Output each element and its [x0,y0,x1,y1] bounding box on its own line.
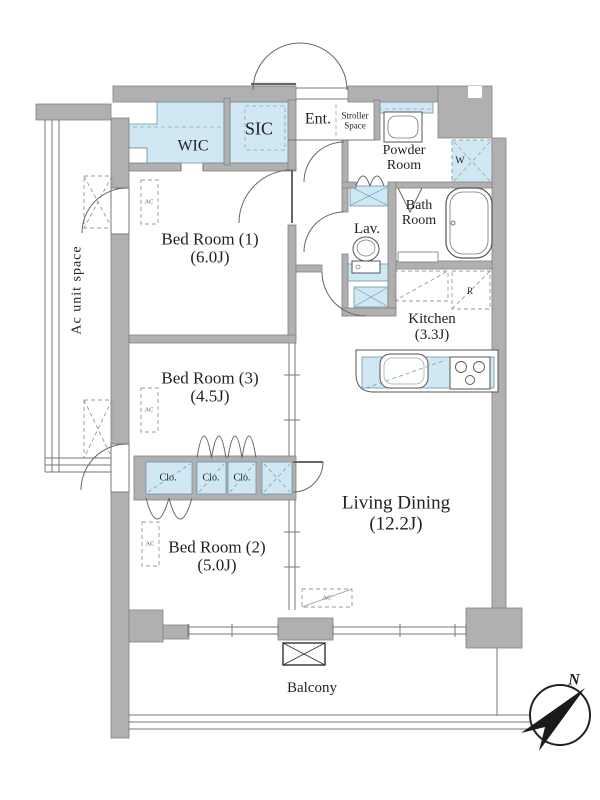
label-entrance: Ent. [305,110,331,127]
compass-icon [521,685,590,751]
label-ac-unit-space: Ac unit space [69,245,84,334]
entry-shelf [376,101,433,113]
pillar-duct [129,148,147,163]
label-refrigerator: R [467,287,473,297]
label-closet-2: Clo. [203,474,220,485]
powder-sink [384,112,422,142]
label-bedroom3: Bed Room (3) (4.5J) [161,370,258,407]
label-balcony: Balcony [287,680,337,696]
label-closet-1: Clo. [160,474,177,485]
label-powder-room: Powder Room [383,143,426,173]
toilet [352,237,380,273]
kitchen-counter [356,350,498,392]
label-ac-bedroom2: AC [145,540,154,547]
label-wic: WIC [177,137,208,154]
bath-step [398,252,438,262]
label-ac-living: AC [322,594,331,601]
label-kitchen: Kitchen (3.3J) [408,311,455,343]
label-compass-north: N [568,671,580,688]
label-bath-room: Bath Room [402,198,436,228]
label-bedroom1: Bed Room (1) (6.0J) [161,231,258,268]
label-stroller-space: Stroller Space [342,111,369,130]
label-bedroom2: Bed Room (2) (5.0J) [168,539,265,576]
walls [36,86,522,738]
kitchen-sink [380,354,428,388]
label-sic: SIC [245,119,273,138]
label-ac-bedroom1: AC [144,198,153,205]
storage-room-fills [129,101,492,307]
label-lavatory: Lav. [354,221,380,237]
label-washer: W [455,157,464,168]
floor-plan: WIC SIC Ent. Stroller Space Powder Room … [0,0,600,800]
label-living-dining: Living Dining (12.2J) [342,493,450,534]
evacuation-hatch [283,643,325,665]
label-ac-bedroom3: AC [144,406,153,413]
label-closet-3: Clo. [234,474,251,485]
wall-notch [468,86,482,98]
